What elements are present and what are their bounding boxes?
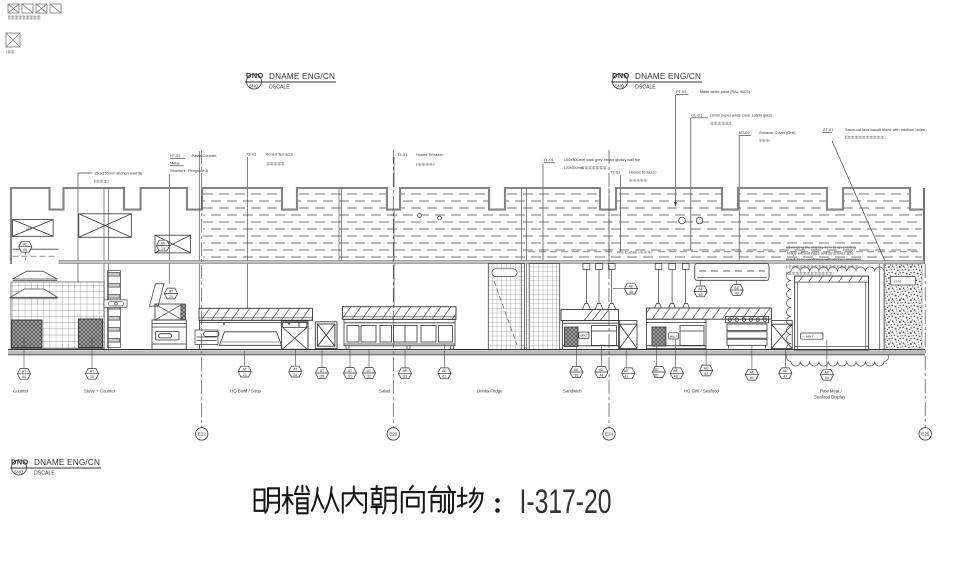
svg-text:47: 47 [783,375,787,379]
svg-text:20: 20 [169,295,173,299]
svg-text:45: 45 [629,290,633,294]
svg-text:AE: AE [23,243,28,247]
svg-text:Honed Terrazzo: Honed Terrazzo [629,170,656,175]
svg-text:52: 52 [704,372,708,376]
svg-text:AE: AE [403,369,408,373]
svg-text:AE: AE [442,369,447,373]
svg-text:AE: AE [624,369,629,373]
svg-text:AE: AE [750,371,755,375]
svg-text:AE: AE [734,286,739,290]
svg-text:Sawn-cut lava basalt stone wit: Sawn-cut lava basalt stone with medium h… [845,127,925,132]
svg-text:32: 32 [367,374,371,378]
svg-text:Salad: Salad [379,389,391,394]
svg-text:150x150mm kitchen wall tile: 150x150mm kitchen wall tile [94,171,143,176]
svg-text:Seafood Display: Seafood Display [814,395,846,400]
svg-text:-- MBLT: -- MBLT [803,335,814,339]
svg-text:Stove + Counter: Stove + Counter [84,389,116,394]
svg-text:Honed Terrazzo: Honed Terrazzo [266,152,293,157]
svg-text:39: 39 [574,373,578,377]
svg-text:Drinks Fridge: Drinks Fridge [477,389,503,394]
svg-text:TZ-01: TZ-01 [610,170,620,175]
svg-text:advancing the display item to: advancing the display item to an existin… [786,245,856,250]
svg-text:100x300mm: 100x300mm [564,166,584,170]
svg-text:GL-01: GL-01 [691,113,702,118]
svg-text:DNAME ENG/CN: DNAME ENG/CN [635,72,701,81]
svg-text:DNAME ENG/CN: DNAME ENG/CN [269,72,335,81]
svg-text:41: 41 [624,375,628,379]
svg-text:1B0: 1B0 [26,227,31,231]
svg-text:Matte white paint (RAL 9003): Matte white paint (RAL 9003) [700,89,751,94]
svg-text:24: 24 [243,373,247,377]
svg-text:E22: E22 [198,432,207,437]
svg-text:Structure, Firegrade A: Structure, Firegrade A [170,168,208,173]
svg-text:MBLT: MBLT [670,334,678,338]
svg-text:AE: AE [599,368,604,372]
svg-text:E25: E25 [921,432,930,437]
svg-text:51: 51 [750,376,754,380]
svg-text:AE: AE [629,284,634,288]
svg-text:DSCALE: DSCALE [34,471,55,477]
svg-text:55: 55 [654,373,658,377]
svg-text:Metal: Metal [170,161,180,166]
svg-text:Raw Meat /: Raw Meat / [820,389,843,394]
svg-text:AE: AE [673,369,678,373]
svg-text:63: 63 [699,293,703,297]
svg-text:AE: AE [783,369,788,373]
svg-text:62: 62 [442,375,446,379]
svg-text:ST-01: ST-01 [894,280,902,284]
svg-text:54: 54 [825,376,829,380]
svg-text:Honed Terrazzo: Honed Terrazzo [416,152,443,157]
svg-text:SNO: SNO [14,470,24,475]
svg-text:33: 33 [403,375,407,379]
svg-text:FF-02: FF-02 [170,153,180,158]
svg-text:DSCALE: DSCALE [635,85,656,91]
svg-text:AE: AE [825,371,830,375]
svg-text:MT-02: MT-02 [739,130,750,135]
svg-text:HG Grill / Seafood: HG Grill / Seafood [684,389,719,394]
svg-text:I-317-20: I-317-20 [520,483,612,521]
svg-text:PT-02: PT-02 [676,89,686,94]
svg-text:AE: AE [698,287,703,291]
svg-text:100x300mm dark grey brown glos: 100x300mm dark grey brown glossy wall ti… [564,157,640,162]
svg-text:MBLT: MBLT [580,334,588,338]
svg-text:Pasta Counter,: Pasta Counter, [192,153,218,158]
svg-text:AE: AE [704,366,709,370]
svg-text:ST-01: ST-01 [823,127,833,132]
svg-text:31: 31 [348,374,352,378]
svg-text:26: 26 [320,374,324,378]
svg-text:Sandwich: Sandwich [563,389,582,394]
svg-text:TL-01: TL-01 [544,157,554,162]
svg-text:04: 04 [22,375,26,379]
svg-text:25: 25 [293,373,297,377]
svg-text:fridge without base and struct: fridge without base and structures size [787,251,853,256]
svg-text:HQ Bowl / Soup: HQ Bowl / Soup [230,389,261,394]
svg-text:DNAME ENG/CN: DNAME ENG/CN [34,458,100,467]
svg-text:10: 10 [90,375,94,379]
svg-text:DSCALE: DSCALE [269,85,290,91]
svg-text:44: 44 [599,373,603,377]
svg-text:Exhaust Cover (Grill): Exhaust Cover (Grill) [759,130,796,135]
svg-text:12mm super white clear safety: 12mm super white clear safety glass [709,113,772,118]
svg-text:E24: E24 [605,432,614,437]
svg-text:TZ-01: TZ-01 [397,152,407,157]
svg-text:AE: AE [654,368,659,372]
svg-text:13: 13 [161,247,165,251]
svg-text:SNO: SNO [249,84,259,89]
svg-text:AE: AE [574,368,579,372]
svg-text:SNO: SNO [615,84,625,89]
svg-text:AE: AE [161,241,166,245]
svg-text:48: 48 [674,375,678,379]
svg-text:05: 05 [23,248,27,252]
svg-text:TZ-01: TZ-01 [246,152,256,157]
svg-text:E23: E23 [389,432,398,437]
svg-text:49: 49 [735,291,739,295]
svg-text:Counter: Counter [13,389,29,394]
